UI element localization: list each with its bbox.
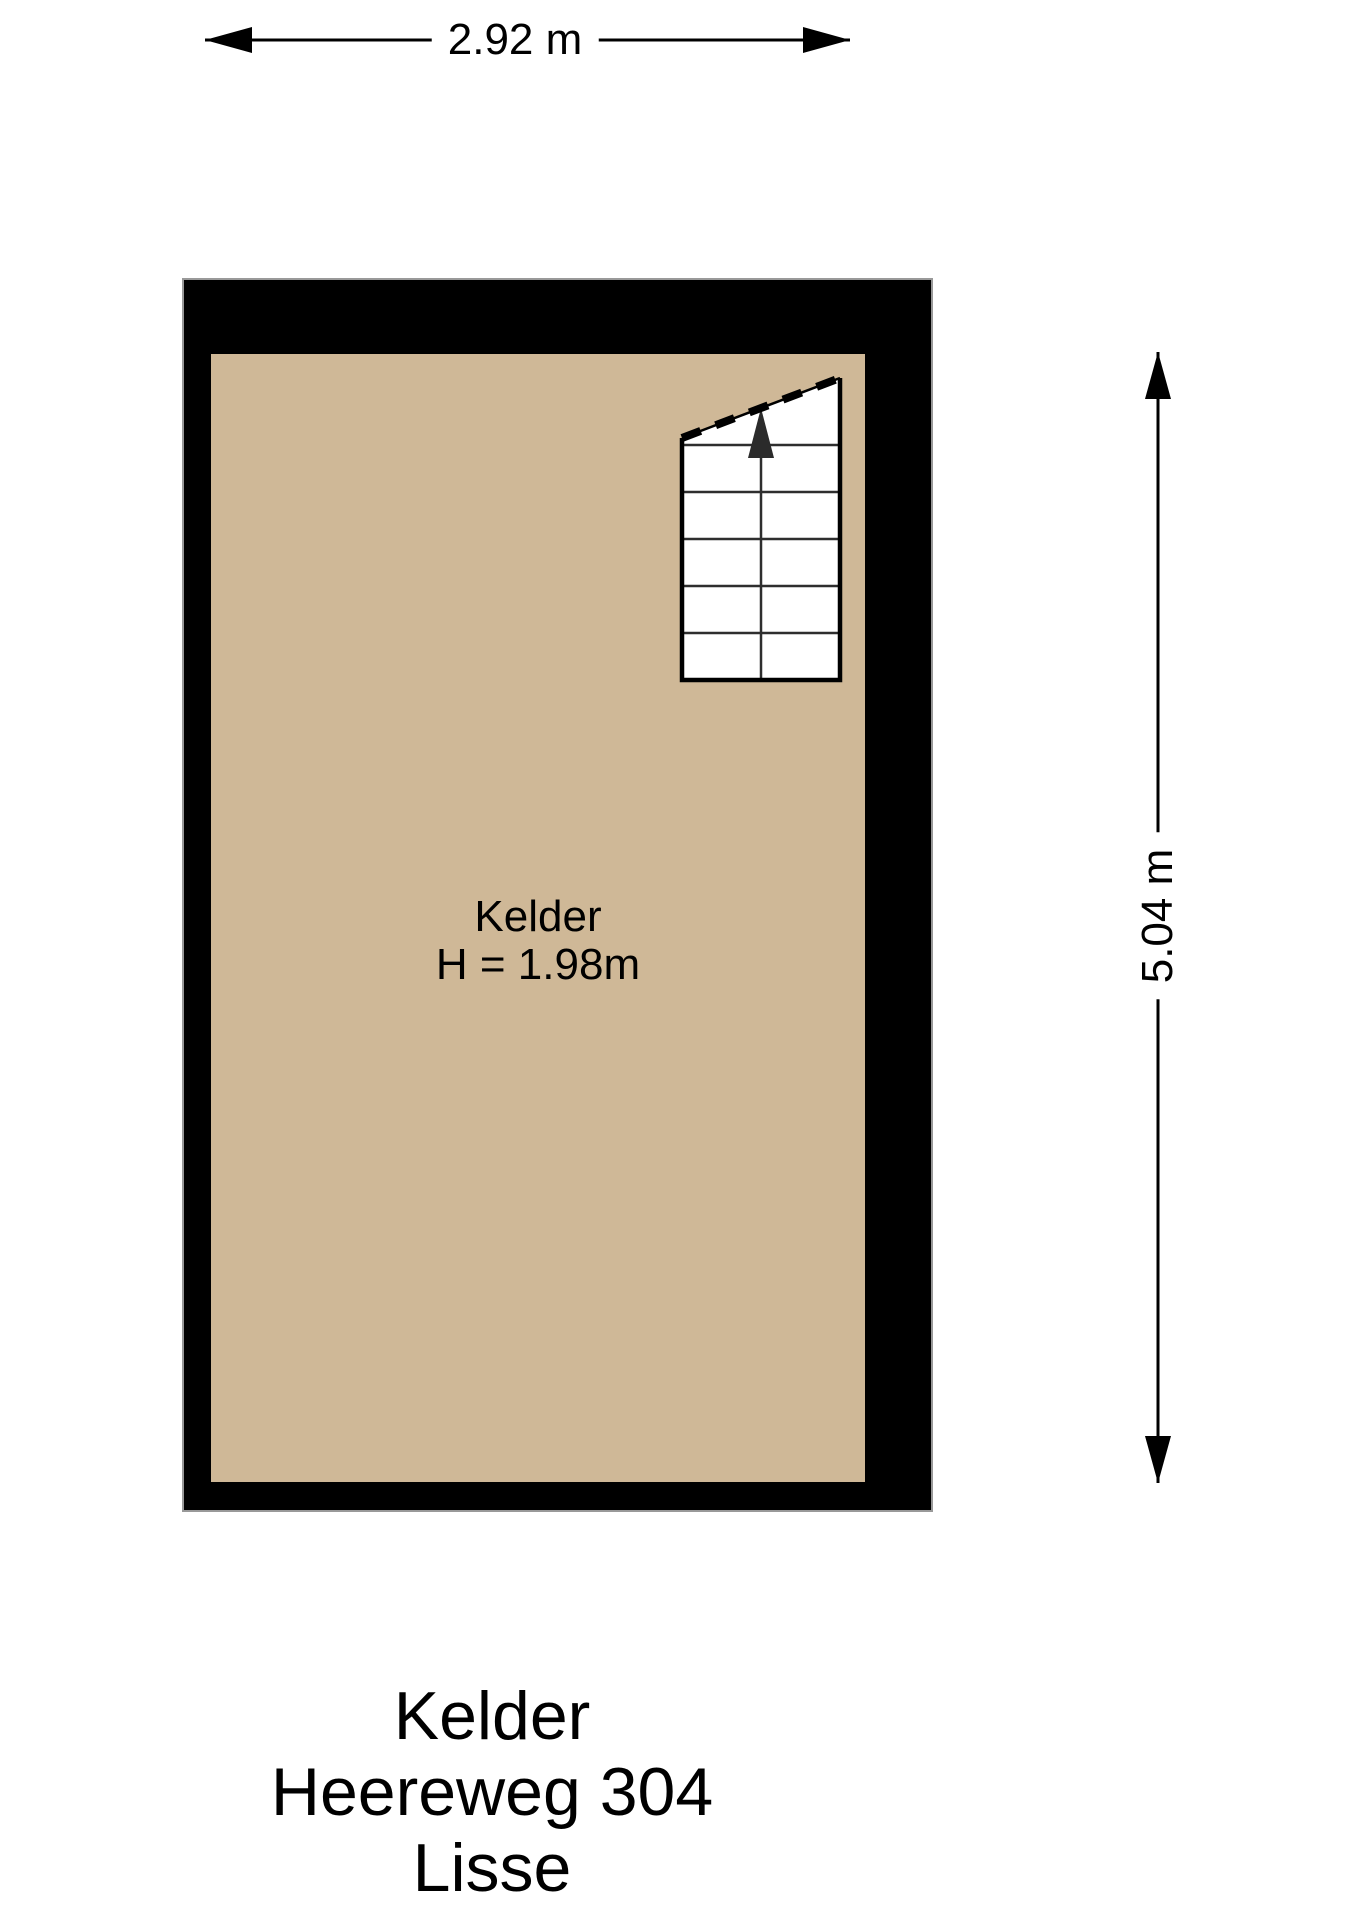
room-name-label: Kelder bbox=[474, 892, 601, 942]
width-dimension-label: 2.92 m bbox=[432, 15, 599, 65]
floorplan-canvas: 2.92 m 5.04 m Kelder H = 1.98m Kelder He… bbox=[0, 0, 1358, 1920]
dimension-arrow-down-icon bbox=[1145, 1436, 1171, 1483]
room-height-label: H = 1.98m bbox=[436, 940, 640, 990]
plan-title-city: Lisse bbox=[271, 1830, 713, 1906]
dimension-arrow-up-icon bbox=[1145, 352, 1171, 399]
dimension-arrow-right-icon bbox=[803, 27, 850, 53]
height-dimension-label: 5.04 m bbox=[1133, 833, 1183, 1000]
plan-title-room: Kelder bbox=[271, 1678, 713, 1754]
plan-title-street: Heereweg 304 bbox=[271, 1754, 713, 1830]
dimension-arrow-left-icon bbox=[205, 27, 252, 53]
plan-title: Kelder Heereweg 304 Lisse bbox=[271, 1678, 713, 1906]
